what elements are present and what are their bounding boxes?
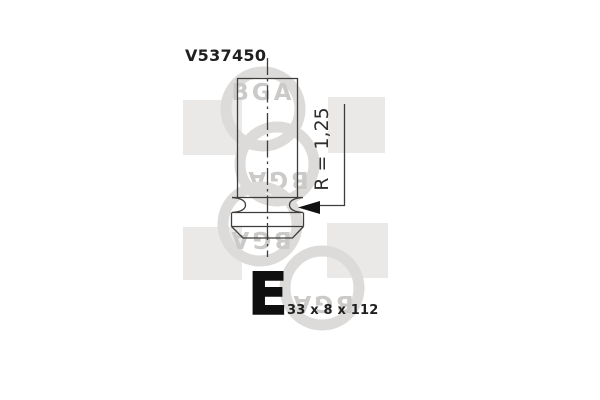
watermark-square — [328, 97, 385, 153]
watermark-brand-text: BGA — [231, 80, 294, 106]
part-number-label: V537450 — [185, 46, 266, 65]
valve-dimensions-label: 33 x 8 x 112 — [287, 303, 379, 318]
radius-dimension-label: R = 1,25 — [311, 89, 335, 209]
valve-category-letter: E — [248, 265, 288, 323]
product-drawing-canvas: BGA BGA BGA BGA — [0, 0, 600, 400]
watermark-brand-text: BGA — [228, 226, 291, 252]
valve-technical-drawing: BGA BGA BGA BGA — [0, 0, 600, 400]
